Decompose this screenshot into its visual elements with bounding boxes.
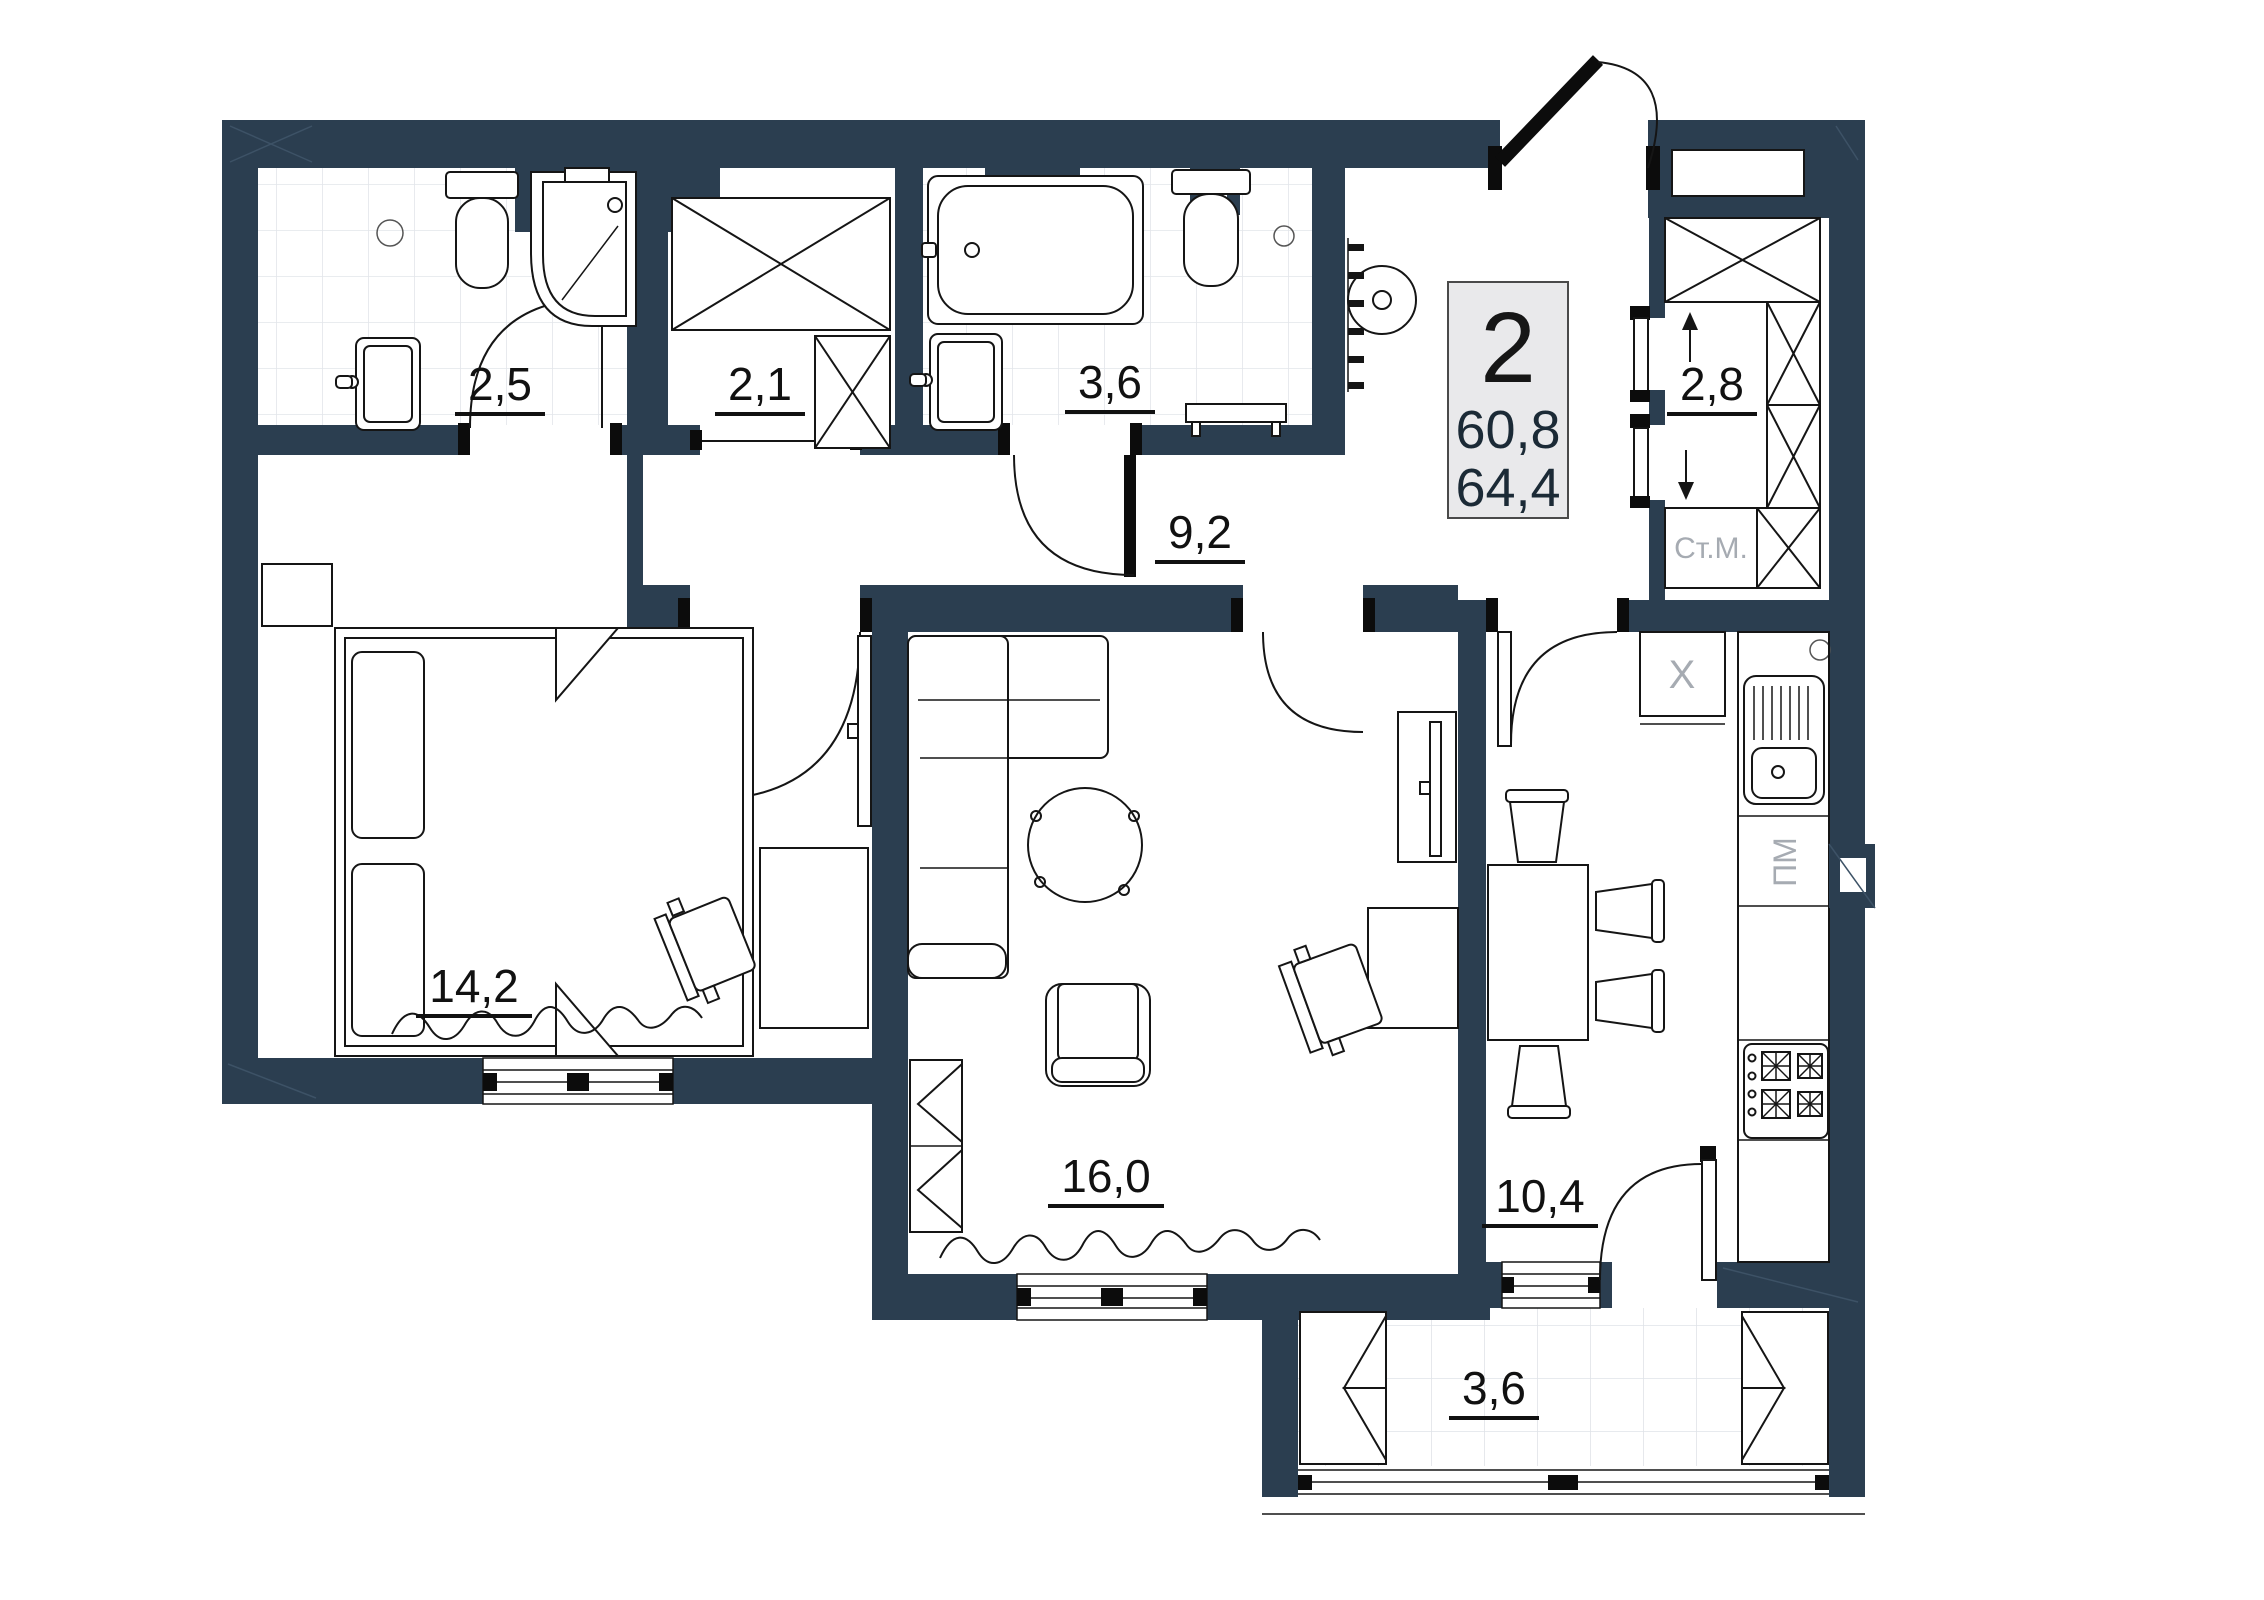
wardrobe-cabinet-icon bbox=[672, 198, 890, 330]
bedroom-furniture bbox=[262, 564, 871, 1056]
label-pantry: 2,8 bbox=[1680, 358, 1744, 410]
wall-wing-left-c bbox=[1649, 500, 1665, 600]
wardrobe-fixtures bbox=[672, 198, 890, 448]
bathtub-icon bbox=[922, 176, 1143, 324]
wall-kitchen-top-b bbox=[1617, 600, 1829, 632]
label-dishwasher: ПМ bbox=[1767, 837, 1803, 887]
wall-hall-bottom-b bbox=[860, 585, 1243, 632]
kitchen-sink-icon bbox=[1744, 676, 1824, 804]
round-table-icon bbox=[1028, 788, 1142, 902]
wall-balcony-left bbox=[1262, 1308, 1298, 1497]
unit-info-badge: 2 60,8 64,4 bbox=[1448, 282, 1568, 518]
curtain-wave bbox=[940, 1230, 1320, 1263]
wardrobe-cabinet-icon bbox=[1665, 218, 1820, 302]
sofa-icon bbox=[908, 636, 1108, 978]
wardrobe-cabinet-icon bbox=[815, 336, 890, 448]
entrance-door bbox=[1488, 60, 1660, 190]
kitchen-door bbox=[1486, 598, 1629, 746]
balcony-door bbox=[1600, 1146, 1716, 1280]
label-bedroom: 14,2 bbox=[429, 960, 519, 1012]
bath-big-door bbox=[998, 423, 1142, 577]
chair-icon bbox=[1596, 880, 1664, 942]
wall-top-main bbox=[222, 120, 1500, 168]
chair-icon bbox=[1596, 970, 1664, 1032]
wall-living-kitchen-divider bbox=[1458, 600, 1486, 1320]
chair-icon bbox=[1508, 1046, 1570, 1118]
wall-bath2-hall bbox=[1312, 168, 1345, 455]
bedroom-window bbox=[483, 1058, 673, 1104]
electrical-panel-icon bbox=[1829, 844, 1875, 908]
floorplan-svg: 2 60,8 64,4 2,5 2,1 3,6 9,2 2,8 14,2 16,… bbox=[0, 0, 2264, 1600]
nightstand-icon bbox=[262, 564, 332, 626]
floorplan-canvas: 2 60,8 64,4 2,5 2,1 3,6 9,2 2,8 14,2 16,… bbox=[0, 0, 2264, 1600]
wall-living-bottom-left bbox=[872, 1274, 1017, 1320]
chair-icon bbox=[1506, 790, 1568, 862]
burner bbox=[1762, 1090, 1790, 1118]
pantry-door-upper bbox=[1630, 306, 1650, 402]
armchair-icon bbox=[1046, 984, 1150, 1086]
tv-stand-icon bbox=[1398, 712, 1456, 862]
dresser-icon bbox=[910, 1060, 962, 1232]
wing-niche bbox=[1672, 150, 1804, 196]
burner bbox=[1798, 1054, 1822, 1078]
dining-table-icon bbox=[1488, 865, 1588, 1040]
living-door bbox=[1231, 598, 1375, 732]
wardrobe-cabinet-icon bbox=[1757, 508, 1820, 588]
arrow-up-icon bbox=[1682, 312, 1698, 362]
label-bath-big: 3,6 bbox=[1078, 356, 1142, 408]
wall-wing-left-a bbox=[1649, 168, 1665, 318]
arrow-down-icon bbox=[1678, 450, 1694, 500]
wall-wardrobe-bath2 bbox=[895, 168, 923, 455]
label-hallway: 9,2 bbox=[1168, 506, 1232, 558]
wall-hall-bottom-c bbox=[1363, 585, 1458, 632]
label-kitchen: 10,4 bbox=[1495, 1170, 1585, 1222]
shower-icon bbox=[531, 168, 636, 326]
label-vent: X bbox=[1669, 653, 1696, 697]
desk-icon bbox=[1368, 908, 1458, 1028]
kitchen-fixtures bbox=[1488, 632, 1875, 1262]
balcony-glazing bbox=[1262, 1466, 1865, 1514]
wardrobe-cabinet-icon bbox=[1767, 302, 1820, 405]
badge-area-total: 64,4 bbox=[1455, 458, 1560, 518]
wall-bath-big-bottom-b bbox=[1130, 425, 1345, 455]
badge-area-living: 60,8 bbox=[1455, 400, 1560, 460]
wall-bedroom-living-divider bbox=[872, 632, 908, 1320]
badge-room-count: 2 bbox=[1480, 292, 1536, 404]
label-bath-small: 2,5 bbox=[468, 358, 532, 410]
label-living: 16,0 bbox=[1061, 1150, 1151, 1202]
wall-kitchen-bottom-b bbox=[1600, 1262, 1612, 1308]
wall-wing-left-b bbox=[1649, 390, 1665, 425]
living-furniture bbox=[908, 636, 1458, 1263]
label-balcony: 3,6 bbox=[1462, 1362, 1526, 1414]
burner bbox=[1798, 1092, 1822, 1116]
label-wardrobe: 2,1 bbox=[728, 358, 792, 410]
toilet-icon bbox=[446, 172, 518, 288]
wardrobe-cabinet-icon bbox=[1767, 405, 1820, 508]
wall-bedroom-bottom-left bbox=[222, 1058, 483, 1104]
tv-icon bbox=[848, 636, 871, 826]
wall-hall-pocket bbox=[627, 425, 643, 632]
balcony-cabinet-icon bbox=[1742, 1312, 1828, 1464]
pantry-door-lower bbox=[1630, 414, 1650, 508]
balcony-cabinet-icon bbox=[1300, 1312, 1386, 1464]
wall-bath-small-bottom-a bbox=[222, 425, 470, 455]
wall-left bbox=[222, 120, 258, 1104]
label-washing-machine: Ст.М. bbox=[1674, 532, 1748, 565]
stove-icon bbox=[1744, 1044, 1828, 1138]
ceiling-light-icon bbox=[1810, 640, 1830, 660]
kitchen-window bbox=[1502, 1262, 1600, 1308]
living-window bbox=[1017, 1274, 1207, 1320]
desk-icon bbox=[760, 848, 868, 1028]
burner bbox=[1762, 1052, 1790, 1080]
